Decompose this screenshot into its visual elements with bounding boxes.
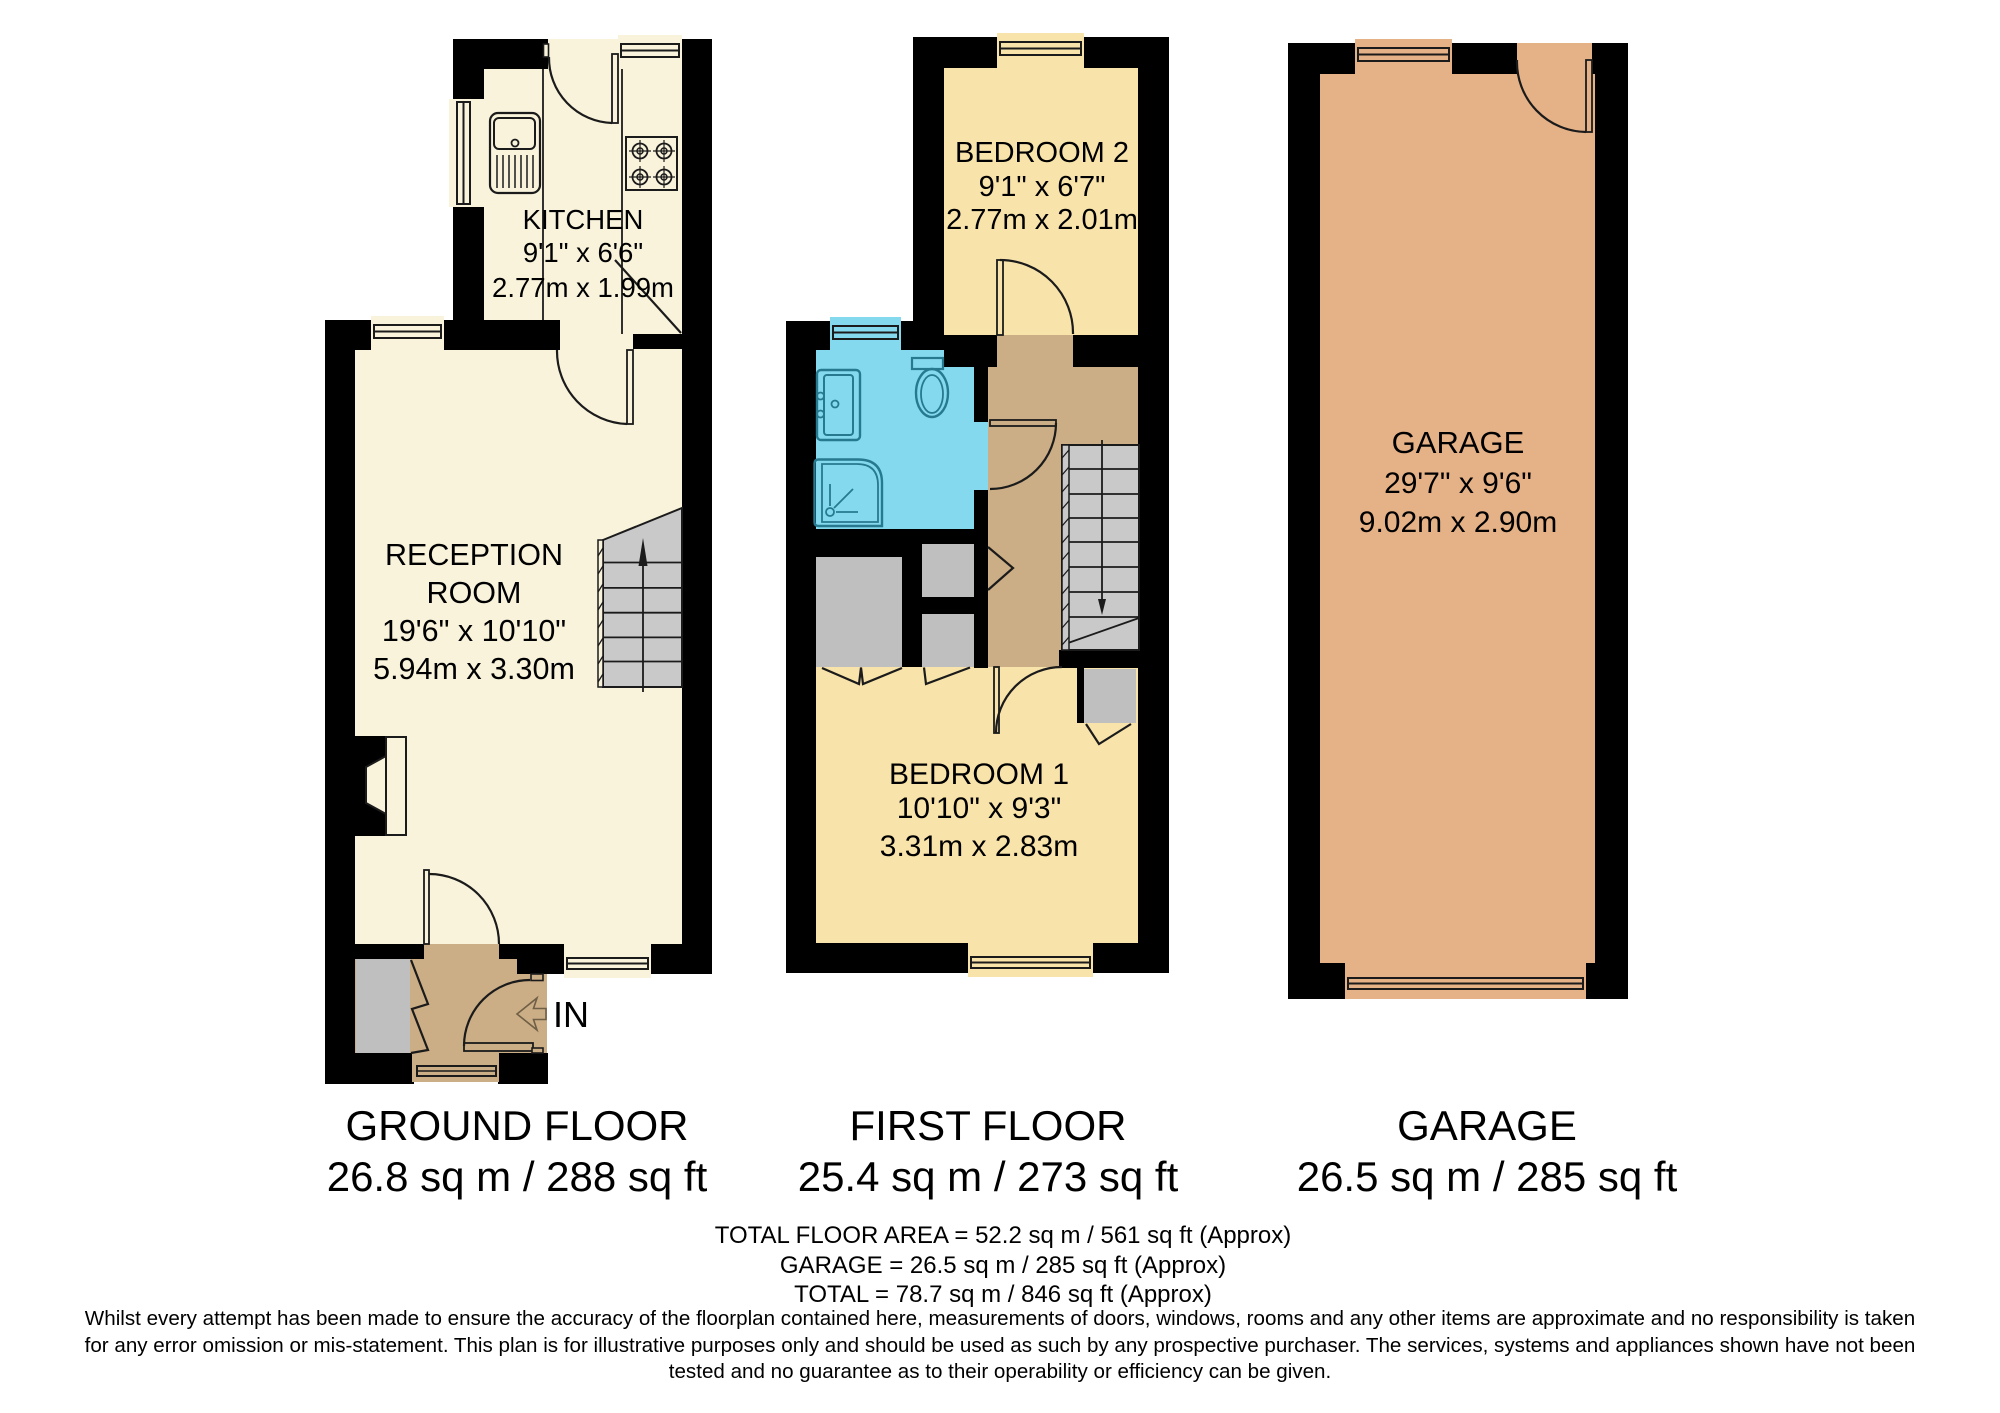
svg-text:TOTAL = 78.7 sq m / 846 sq ft: TOTAL = 78.7 sq m / 846 sq ft (Approx) xyxy=(794,1281,1212,1308)
svg-text:RECEPTION: RECEPTION xyxy=(385,538,563,572)
svg-text:GARAGE: GARAGE xyxy=(1397,1102,1577,1149)
svg-text:9'1" x 6'7": 9'1" x 6'7" xyxy=(979,171,1106,203)
svg-text:KITCHEN: KITCHEN xyxy=(523,204,644,235)
svg-text:TOTAL FLOOR AREA = 52.2 sq m /: TOTAL FLOOR AREA = 52.2 sq m / 561 sq ft… xyxy=(715,1222,1291,1249)
svg-text:FIRST FLOOR: FIRST FLOOR xyxy=(850,1102,1127,1149)
svg-text:19'6" x 10'10": 19'6" x 10'10" xyxy=(382,614,566,648)
svg-text:GROUND FLOOR: GROUND FLOOR xyxy=(345,1102,688,1149)
svg-text:2.77m x 1.99m: 2.77m x 1.99m xyxy=(492,272,674,303)
svg-text:BEDROOM 2: BEDROOM 2 xyxy=(955,137,1129,169)
svg-text:5.94m x 3.30m: 5.94m x 3.30m xyxy=(373,652,575,686)
svg-text:9'1" x 6'6": 9'1" x 6'6" xyxy=(523,237,643,268)
svg-text:10'10" x 9'3": 10'10" x 9'3" xyxy=(897,792,1062,825)
svg-text:for any error omission or mis-: for any error omission or mis-statement.… xyxy=(85,1334,1916,1357)
svg-text:3.31m x 2.83m: 3.31m x 2.83m xyxy=(880,830,1078,863)
svg-text:GARAGE = 26.5 sq m / 285 sq ft: GARAGE = 26.5 sq m / 285 sq ft (Approx) xyxy=(780,1252,1226,1279)
svg-text:IN: IN xyxy=(553,994,589,1035)
svg-text:Whilst every attempt has been: Whilst every attempt has been made to en… xyxy=(85,1307,1915,1330)
svg-text:ROOM: ROOM xyxy=(427,576,522,610)
svg-text:26.5 sq m / 285 sq ft: 26.5 sq m / 285 sq ft xyxy=(1297,1153,1678,1200)
svg-text:29'7" x 9'6": 29'7" x 9'6" xyxy=(1384,467,1532,500)
svg-text:tested and no guarantee as to: tested and no guarantee as to their oper… xyxy=(669,1360,1331,1383)
svg-text:2.77m x 2.01m: 2.77m x 2.01m xyxy=(946,204,1138,236)
svg-text:GARAGE: GARAGE xyxy=(1392,425,1525,460)
svg-text:25.4 sq m / 273 sq ft: 25.4 sq m / 273 sq ft xyxy=(798,1153,1179,1200)
svg-text:9.02m x 2.90m: 9.02m x 2.90m xyxy=(1359,506,1557,539)
svg-text:BEDROOM 1: BEDROOM 1 xyxy=(889,758,1069,791)
svg-text:26.8 sq m / 288 sq ft: 26.8 sq m / 288 sq ft xyxy=(327,1153,708,1200)
